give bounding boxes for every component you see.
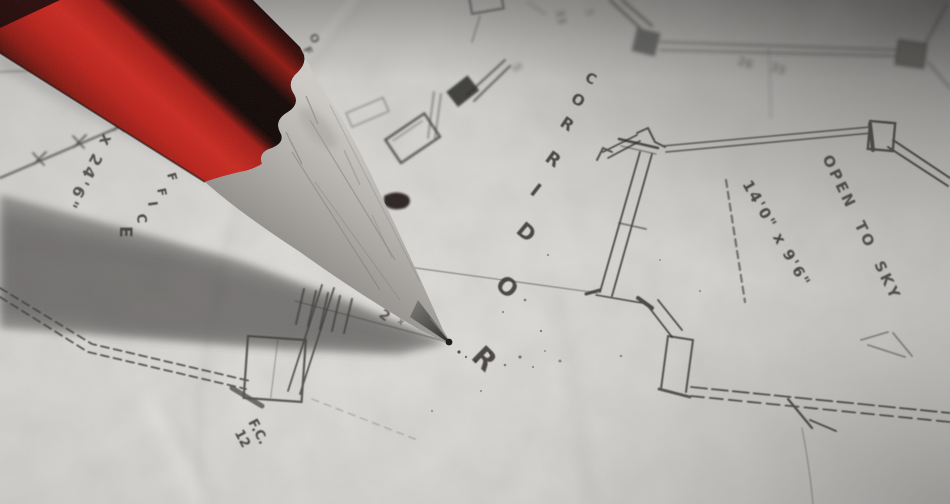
vignette-top-right — [430, 0, 950, 220]
photo-canvas: CORRIDOR OFFICE OFFICE 0' x 24'6" OPEN T… — [0, 0, 950, 504]
photograph-pencil-on-floor-plan: CORRIDOR OFFICE OFFICE 0' x 24'6" OPEN T… — [0, 0, 950, 504]
